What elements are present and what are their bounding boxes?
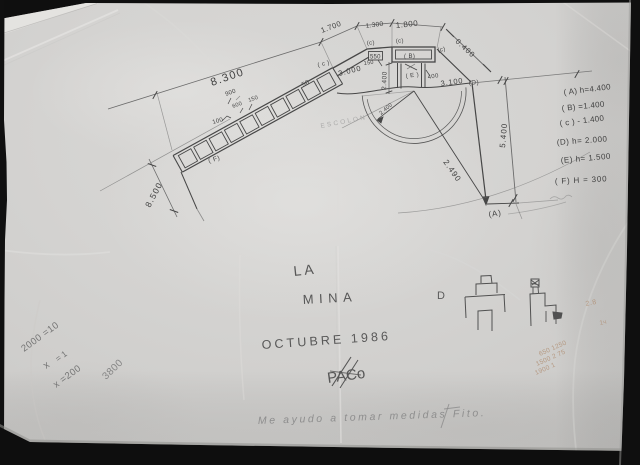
svg-text:(c): (c) bbox=[367, 40, 375, 47]
svg-text:2.400: 2.400 bbox=[381, 71, 389, 90]
svg-text:( B): ( B) bbox=[404, 54, 415, 60]
svg-text:LA: LA bbox=[293, 261, 318, 279]
svg-text:1ч: 1ч bbox=[599, 319, 607, 327]
svg-text:MINA: MINA bbox=[302, 289, 357, 307]
svg-text:(A): (A) bbox=[488, 208, 502, 219]
svg-text:D: D bbox=[437, 290, 445, 302]
svg-text:(c): (c) bbox=[396, 38, 404, 45]
